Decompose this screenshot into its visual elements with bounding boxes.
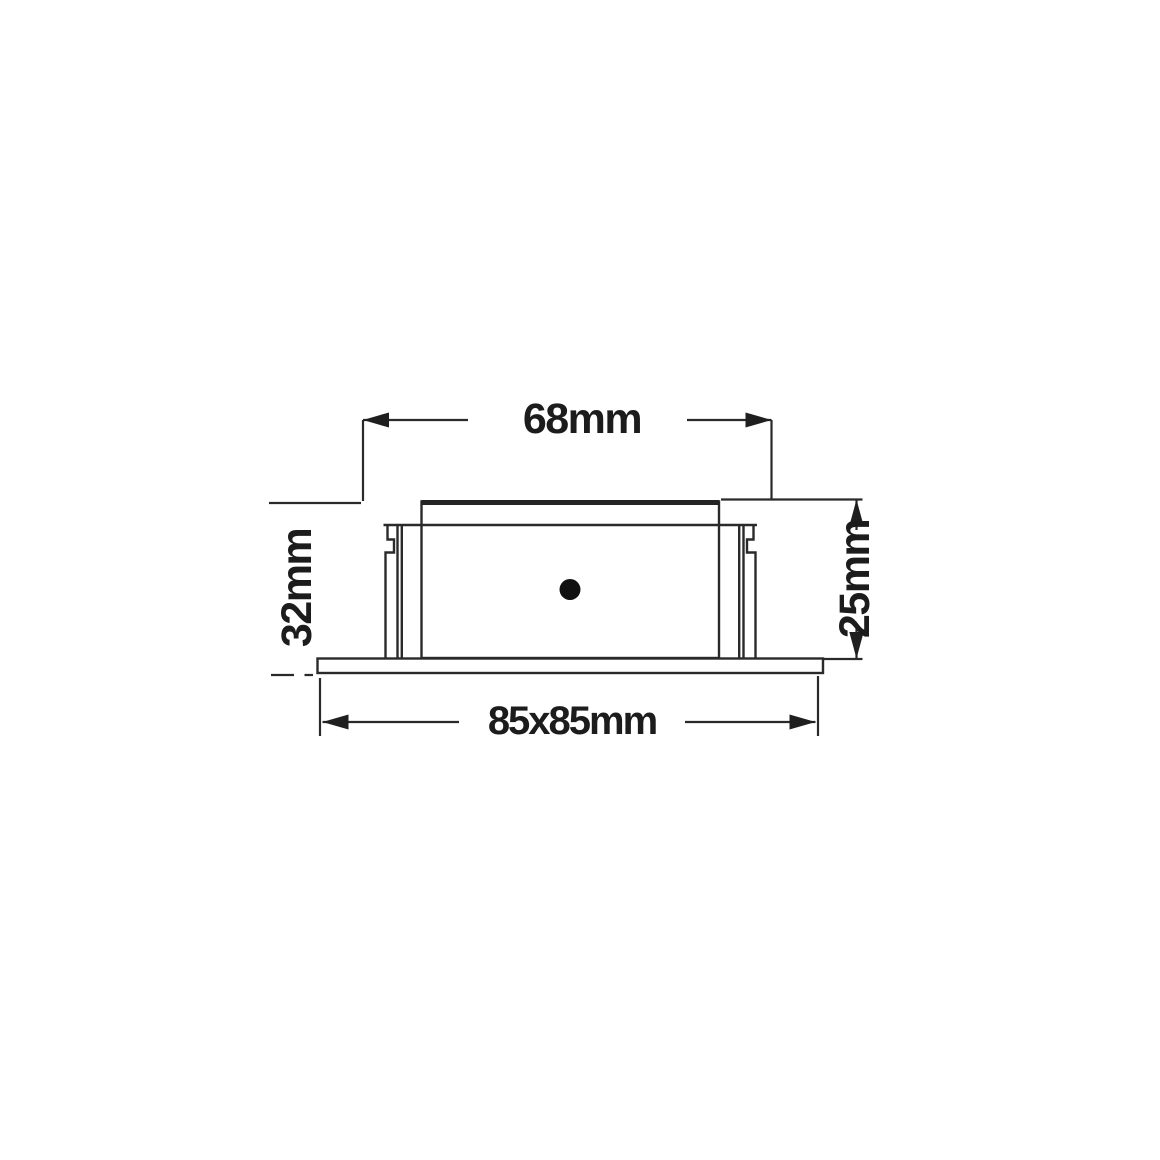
technical-drawing-canvas: 68mm 32mm 25mm 85x85mm [0, 0, 1160, 1160]
clip-right-outer-profile [747, 525, 756, 658]
arrow-left-icon [323, 715, 349, 730]
mounting-clip-right [739, 525, 755, 658]
center-dot [560, 579, 581, 600]
arrow-right-icon [746, 413, 772, 428]
dimension-drawing-svg: 68mm 32mm 25mm 85x85mm [0, 0, 1160, 1160]
arrow-right-icon [790, 715, 816, 730]
dimension-left-height: 32mm [269, 503, 361, 675]
dim-label-right-depth: 25mm [831, 520, 879, 638]
arrow-left-icon [363, 413, 389, 428]
base-flange [318, 659, 824, 674]
mounting-clip-left [386, 525, 402, 658]
dim-label-top-width: 68mm [523, 395, 641, 443]
dim-label-bottom-width: 85x85mm [488, 699, 657, 743]
fixture-outline [318, 502, 824, 674]
dimension-top-width: 68mm [363, 395, 772, 501]
clip-left-outer-profile [386, 525, 395, 658]
clip-left-channel [398, 525, 402, 658]
dim-label-left-height: 32mm [273, 529, 321, 647]
clip-right-channel [739, 525, 743, 658]
dimension-bottom-width: 85x85mm [320, 676, 818, 743]
